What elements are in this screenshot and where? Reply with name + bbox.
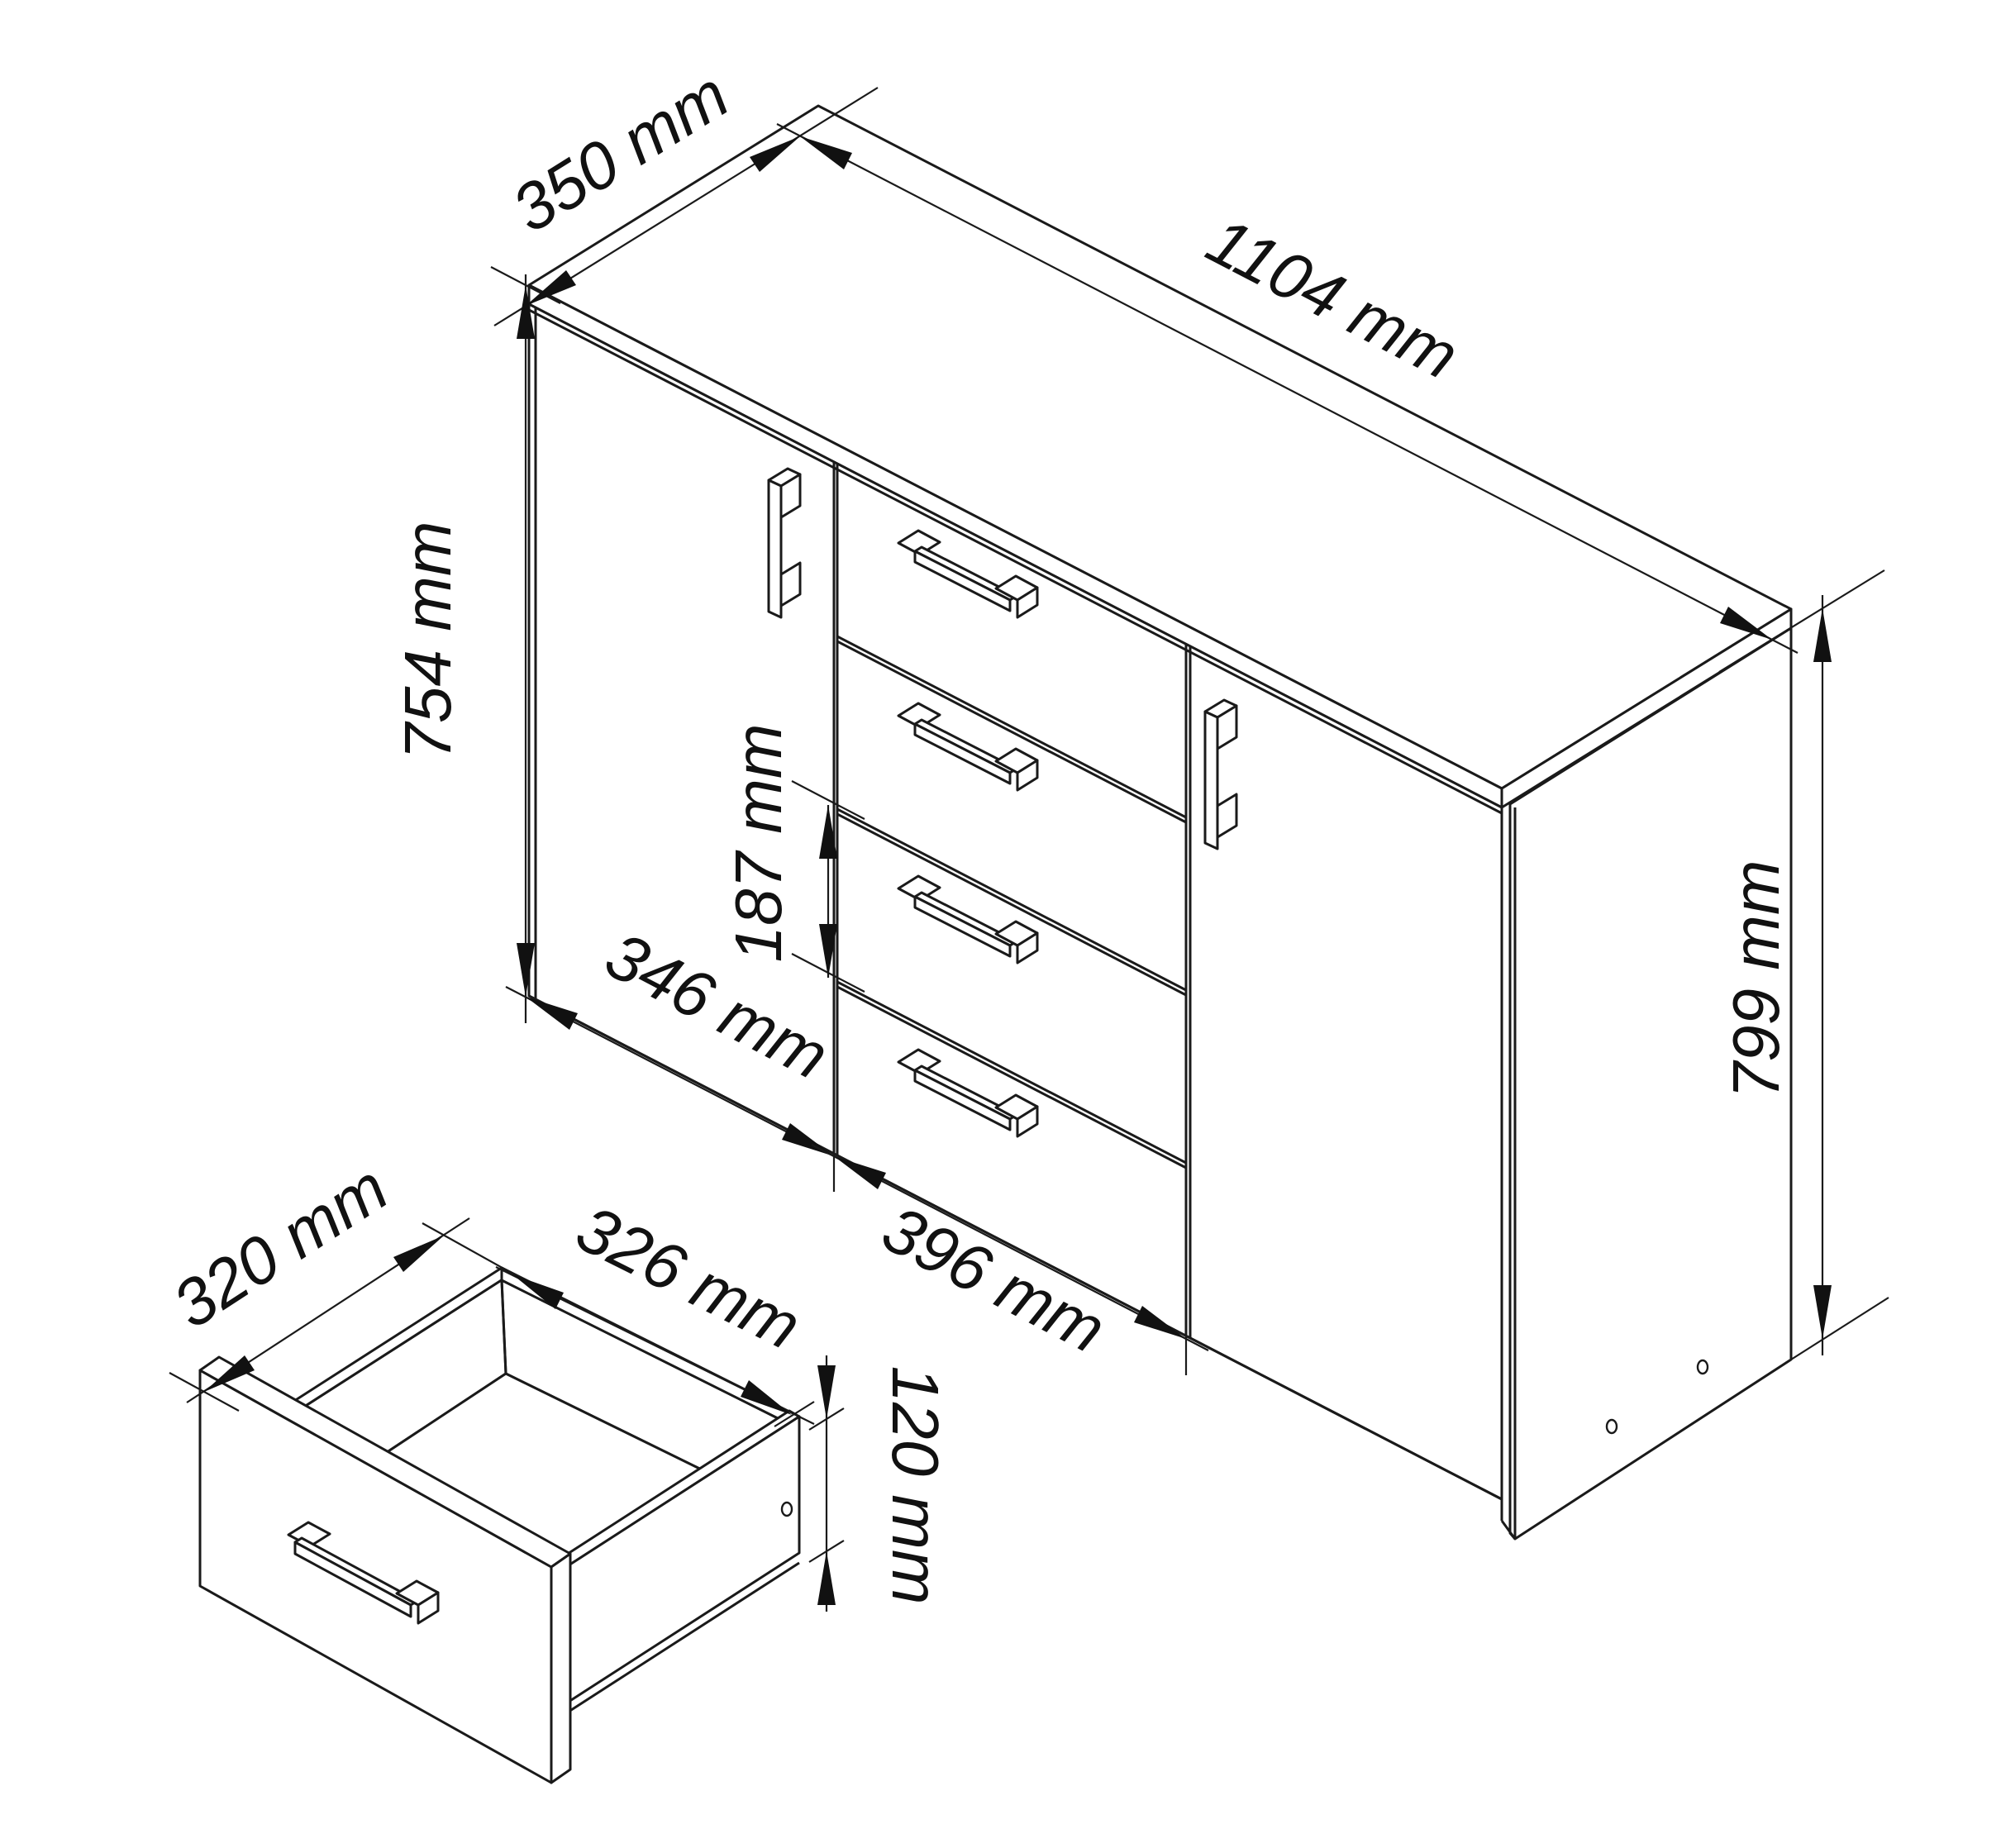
dim-label-total-height: 799 mm: [1719, 860, 1793, 1099]
drawer-detail-drawing: [200, 1268, 799, 1783]
dim-label-drawer-height: 187 mm: [722, 724, 795, 963]
arrowhead: [817, 1551, 836, 1605]
dim-label-detail-height: 120 mm: [879, 1366, 952, 1605]
arrowhead: [817, 1365, 836, 1419]
drawer-front-right-edge: [551, 1554, 570, 1783]
drawing-canvas: 350 mm 1104 mm 754 mm 346 mm 396 mm 187 …: [0, 0, 2001, 1848]
dimension-drawing: 350 mm 1104 mm 754 mm 346 mm 396 mm 187 …: [0, 0, 2001, 1848]
arrowhead: [393, 1236, 444, 1272]
dim-ext-bottom-right: [1791, 1298, 1889, 1360]
arrowhead: [1813, 1285, 1832, 1339]
dim-ext-detail-back-left: [422, 1223, 529, 1283]
dim-label-front-height: 754 mm: [391, 522, 465, 760]
arrowhead: [1813, 608, 1832, 662]
dim-label-detail-depth: 320 mm: [160, 1150, 401, 1342]
